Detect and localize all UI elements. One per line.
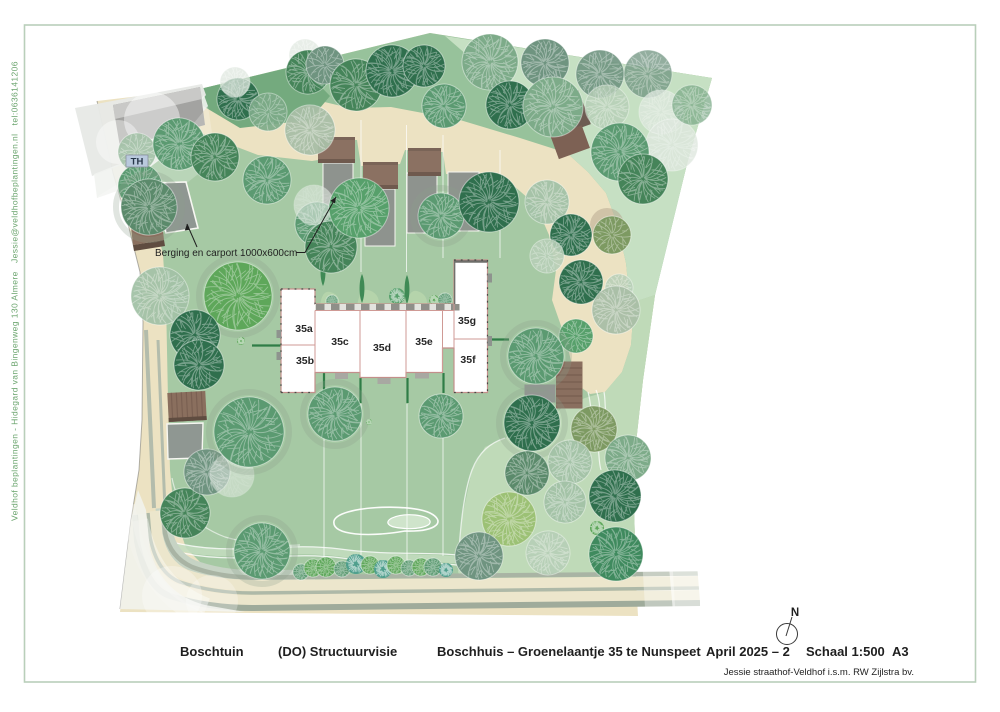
svg-text:Berging en carport 1000x600cm: Berging en carport 1000x600cm (155, 248, 297, 259)
svg-text:35c: 35c (331, 336, 349, 348)
svg-text:Jessie straathof-Veldhof i.s.m: Jessie straathof-Veldhof i.s.m. RW Zijls… (724, 667, 914, 678)
svg-text:(DO) Structuurvisie: (DO) Structuurvisie (278, 644, 397, 659)
svg-text:Boschhuis – Groenelaantje 35 t: Boschhuis – Groenelaantje 35 te Nunspeet (437, 644, 701, 659)
svg-text:TH: TH (131, 157, 144, 168)
svg-text:35d: 35d (373, 342, 391, 354)
svg-text:35e: 35e (415, 336, 433, 348)
svg-text:35g: 35g (458, 315, 476, 327)
svg-text:April 2025 – 2: April 2025 – 2 (706, 644, 790, 659)
svg-text:35f: 35f (460, 354, 476, 366)
svg-text:Veldhof beplantingen - Hidegar: Veldhof beplantingen - Hidegard van Bing… (10, 61, 20, 521)
svg-text:35b: 35b (296, 355, 314, 367)
svg-text:Schaal 1:500 A3: Schaal 1:500 A3 (806, 644, 909, 659)
svg-text:N: N (791, 607, 799, 619)
svg-text:35a: 35a (295, 323, 313, 335)
svg-text:Boschtuin: Boschtuin (180, 644, 244, 659)
